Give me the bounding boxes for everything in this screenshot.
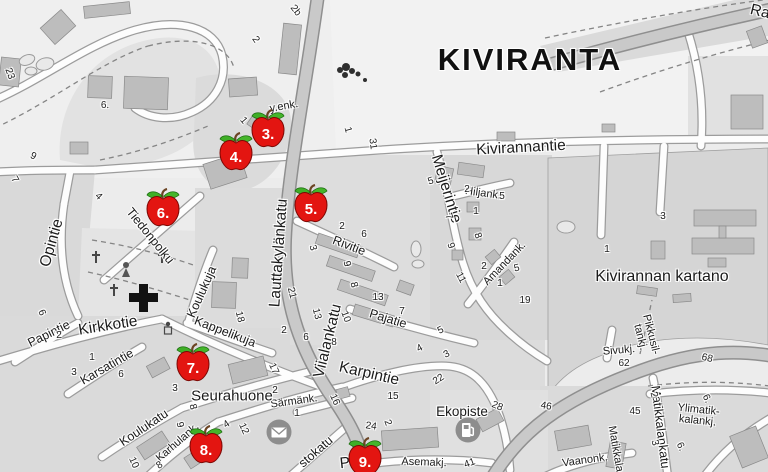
apple-marker-8[interactable]: 8. (189, 425, 223, 465)
apple-icon: 9. (348, 437, 382, 472)
apple-marker-4[interactable]: 4. (219, 132, 253, 172)
apple-marker-5[interactable]: 5. (294, 184, 328, 224)
apple-marker-6[interactable]: 6. (146, 188, 180, 228)
apple-icon: 6. (146, 188, 180, 228)
marker-layer: 3. 4. 5. 6. 7. 8. 9. (0, 0, 768, 472)
svg-text:9.: 9. (359, 454, 372, 471)
svg-text:7.: 7. (187, 360, 200, 377)
apple-icon: 5. (294, 184, 328, 224)
apple-marker-7[interactable]: 7. (176, 343, 210, 383)
svg-text:8.: 8. (200, 442, 213, 459)
svg-text:4.: 4. (230, 149, 243, 166)
svg-text:3.: 3. (262, 126, 275, 143)
map-canvas: KIVIRANTA KivirannantieRaMeijerintieHilj… (0, 0, 768, 472)
apple-icon: 7. (176, 343, 210, 383)
svg-text:5.: 5. (305, 201, 318, 218)
apple-icon: 8. (189, 425, 223, 465)
svg-text:6.: 6. (157, 205, 170, 222)
apple-marker-3[interactable]: 3. (251, 109, 285, 149)
apple-icon: 4. (219, 132, 253, 172)
apple-icon: 3. (251, 109, 285, 149)
apple-marker-9[interactable]: 9. (348, 437, 382, 472)
